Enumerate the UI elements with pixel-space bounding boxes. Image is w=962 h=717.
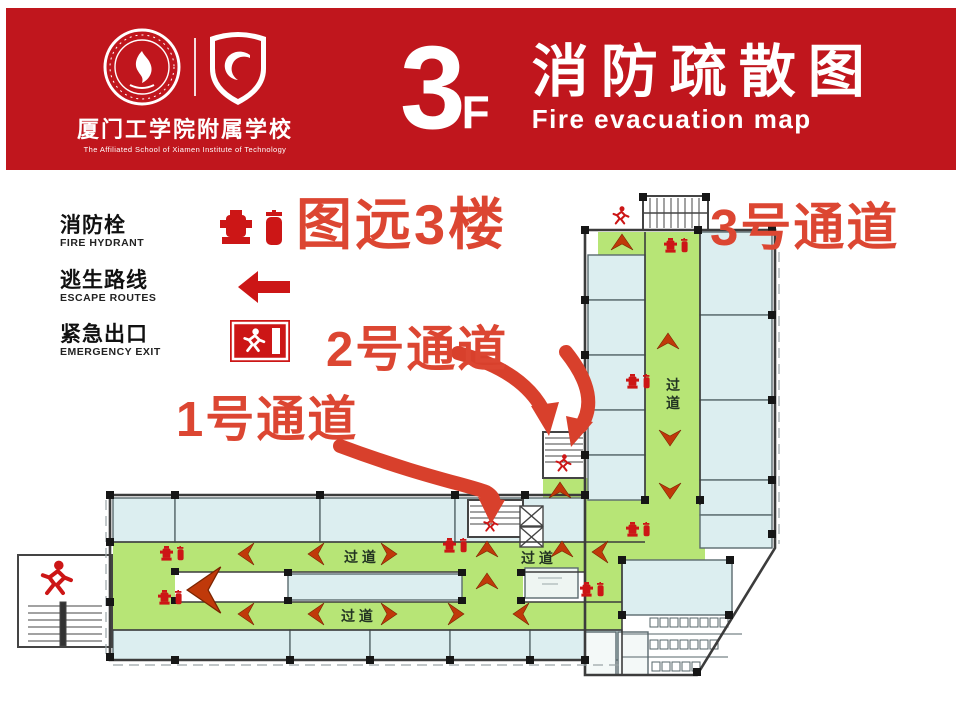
corridor-label-bottom: 过 道 [341,608,373,624]
floor-number: 3 [400,37,462,141]
legend-escape-routes-en: ESCAPE ROUTES [60,292,156,304]
poster-title-zh: 消防疏散图 [532,43,877,103]
school-name-en: The Affiliated School of Xiamen Institut… [84,145,287,154]
annotation-channel-2: 2号通道 [326,310,508,381]
legend-fire-hydrant-en: FIRE HYDRANT [60,237,144,249]
school-shield-icon [206,27,270,107]
fire-hydrant-extinguisher-icon [218,210,290,254]
annotation-channel-3: 3号通道 [710,186,899,260]
legend-row-emergency-exit: 紧急出口 EMERGENCY EXIT [60,320,290,362]
legend-escape-routes-zh: 逃生路线 [60,270,156,292]
floor-indicator: 3 F [400,37,490,141]
legend-row-fire-hydrant: 消防栓 FIRE HYDRANT [60,210,290,254]
emergency-exit-icon [230,320,290,362]
legend-row-escape-routes: 逃生路线 ESCAPE ROUTES [60,270,290,304]
poster-title: 消防疏散图 Fire evacuation map [532,43,877,136]
school-name-zh: 厦门工学院附属学校 [77,112,293,144]
fire-evacuation-poster: 厦门工学院附属学校 The Affiliated School of Xiame… [0,0,962,717]
annotation-floor-note: 图远3楼 [296,180,507,261]
school-logo-block: 厦门工学院附属学校 The Affiliated School of Xiame… [60,24,310,154]
escape-route-arrow-icon [238,271,290,303]
legend-emergency-exit-zh: 紧急出口 [60,324,161,346]
school-seal-icon [100,25,184,109]
corridor-label-vertical-1: 过 [666,377,680,393]
corridor-label-top: 过 道 [344,549,376,565]
floor-letter: F [462,89,490,135]
legend-fire-hydrant-zh: 消防栓 [60,215,144,237]
legend: 消防栓 FIRE HYDRANT [60,210,290,378]
elevators [520,506,543,547]
poster-title-en: Fire evacuation map [532,104,877,135]
header-band: 厦门工学院附属学校 The Affiliated School of Xiame… [6,8,956,170]
logo-divider [194,38,196,96]
annotation-channel-1: 1号通道 [176,380,358,451]
corridor-label-center: 过 道 [521,550,553,566]
corridor-label-vertical-2: 道 [666,395,680,411]
legend-emergency-exit-en: EMERGENCY EXIT [60,346,161,358]
floor-plan-area: 过 道 过 道 过 道 过 道 消防栓 [0,170,962,717]
